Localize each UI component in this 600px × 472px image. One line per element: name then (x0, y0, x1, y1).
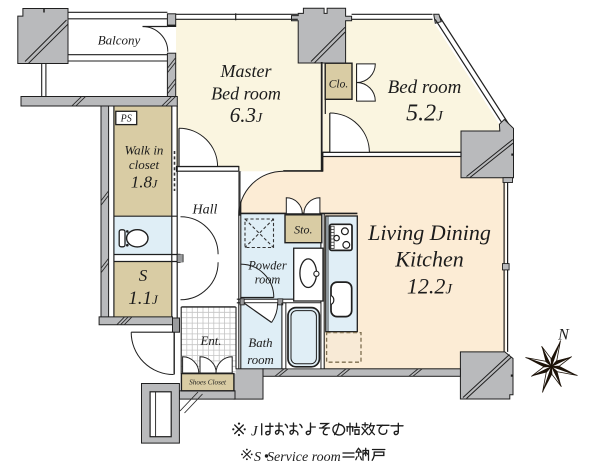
svg-text:Clo.: Clo. (329, 79, 349, 91)
svg-text:Powder: Powder (247, 259, 286, 273)
svg-text:S: S (139, 266, 148, 285)
svg-text:room: room (255, 273, 281, 287)
svg-text:Bed room: Bed room (388, 77, 462, 98)
svg-text:Service room: Service room (267, 450, 341, 465)
svg-text:Shoes Closet: Shoes Closet (189, 379, 227, 387)
svg-text:PS: PS (120, 114, 132, 125)
svg-text:Sto.: Sto. (294, 222, 312, 236)
svg-text:S: S (254, 450, 261, 465)
svg-text:Bed room: Bed room (211, 84, 281, 104)
svg-text:Walk in: Walk in (125, 143, 164, 158)
svg-text:closet: closet (129, 157, 160, 172)
svg-text:Hall: Hall (192, 202, 218, 217)
svg-text:1.1J: 1.1J (128, 288, 159, 309)
svg-text:Ent.: Ent. (200, 334, 222, 348)
svg-text:N: N (557, 327, 570, 344)
svg-text:Balcony: Balcony (98, 33, 141, 48)
svg-text:Kitchen: Kitchen (394, 247, 463, 272)
svg-text:Master: Master (220, 61, 273, 81)
svg-text:room: room (247, 353, 274, 367)
svg-text:Living Dining: Living Dining (367, 220, 491, 245)
svg-text:Bath: Bath (248, 336, 272, 350)
